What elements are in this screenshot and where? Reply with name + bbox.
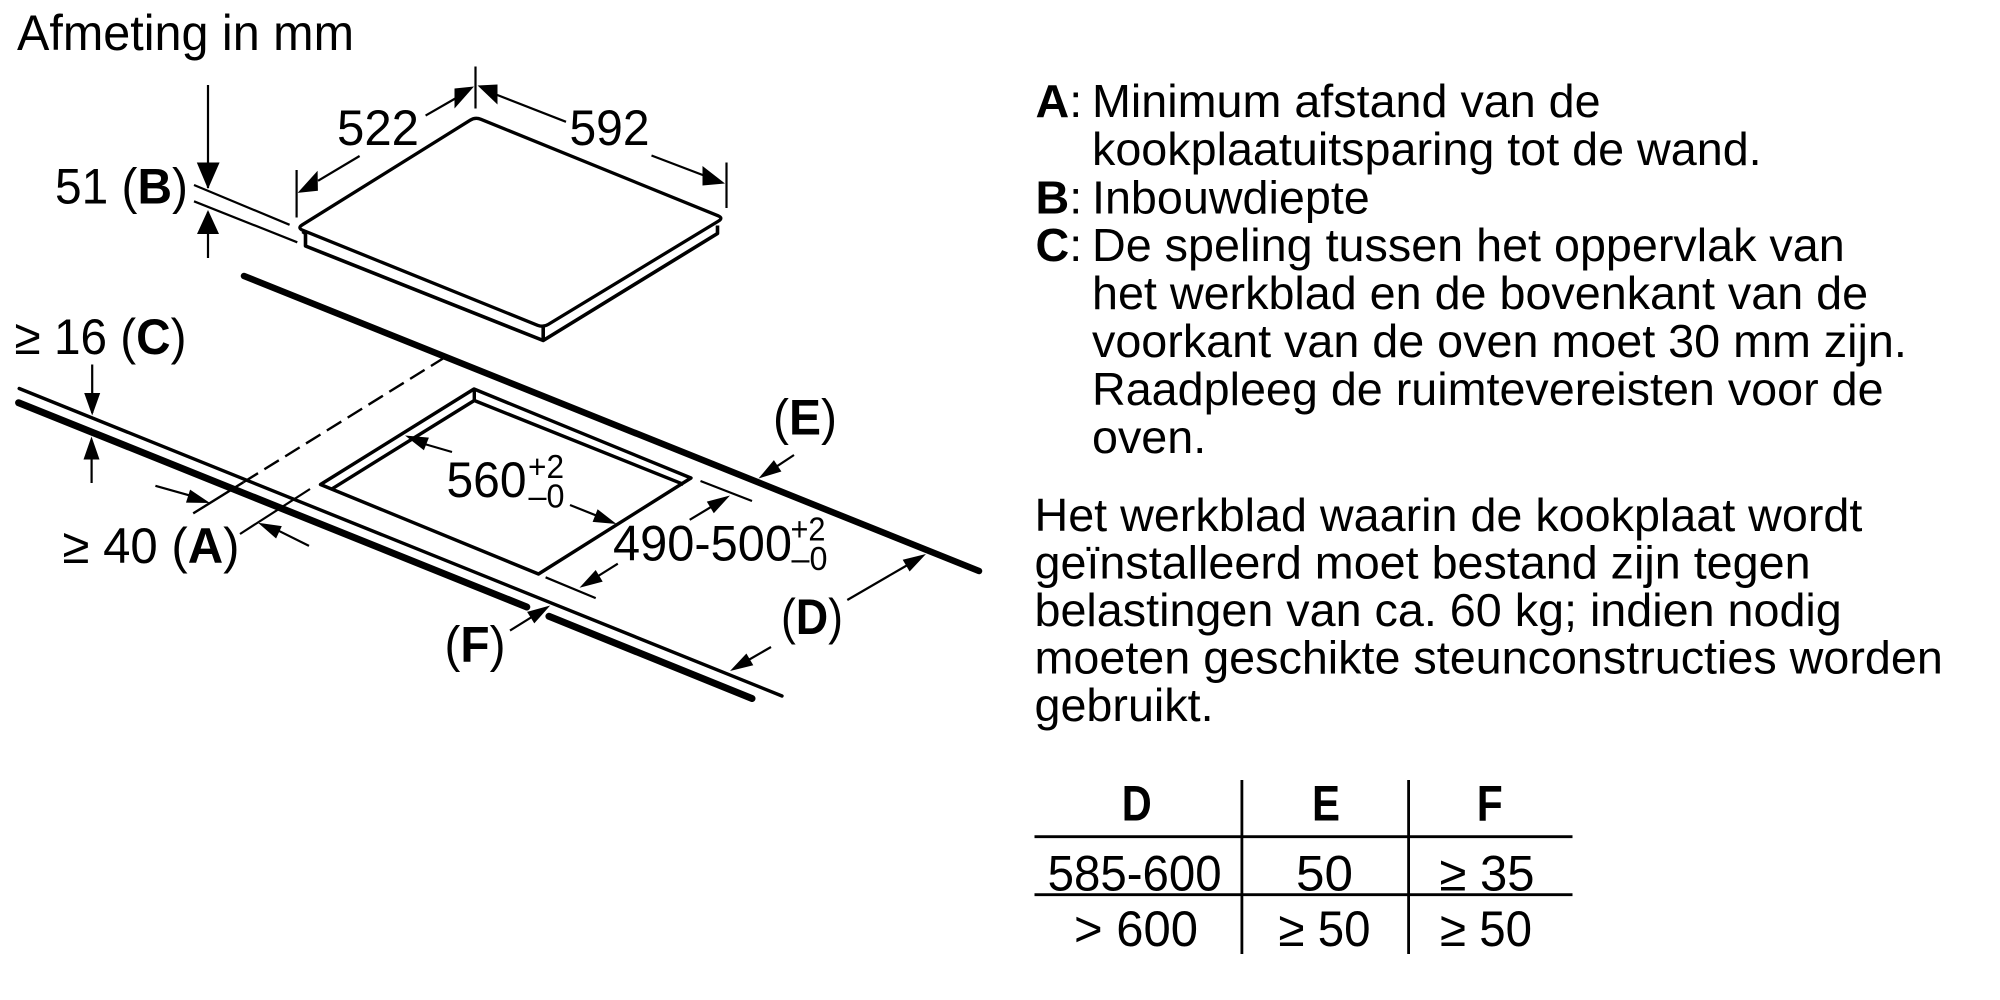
svg-text:(F): (F) (445, 617, 506, 673)
svg-text:≥ 50: ≥ 50 (1440, 901, 1532, 957)
svg-text:(E): (E) (773, 390, 837, 446)
svg-text:560: 560 (447, 452, 527, 508)
svg-text:E: E (1312, 776, 1340, 832)
svg-text:belastingen van ca. 60 kg; ind: belastingen van ca. 60 kg; indien nodig (1035, 584, 1842, 636)
svg-text:≥ 16 (C): ≥ 16 (C) (15, 309, 187, 365)
svg-text:het werkblad en de bovenkant v: het werkblad en de bovenkant van de (1092, 267, 1868, 319)
svg-text:B:: B: (1036, 172, 1083, 224)
svg-text:(D): (D) (781, 589, 843, 645)
svg-text:592: 592 (570, 100, 650, 156)
svg-text:A:: A: (1036, 75, 1083, 127)
svg-text:geïnstalleerd moet bestand zij: geïnstalleerd moet bestand zijn tegen (1035, 537, 1811, 589)
svg-text:50: 50 (1296, 846, 1353, 902)
svg-text:490-500: 490-500 (613, 516, 792, 572)
svg-text:kookplaatuitsparing tot de wan: kookplaatuitsparing tot de wand. (1092, 123, 1762, 175)
svg-text:≥ 40 (A): ≥ 40 (A) (63, 518, 240, 574)
svg-text:oven.: oven. (1092, 411, 1206, 463)
svg-text:moeten geschikte steunconstruc: moeten geschikte steunconstructies worde… (1035, 632, 1943, 684)
svg-text:Minimum afstand van de: Minimum afstand van de (1092, 75, 1601, 127)
svg-text:≥ 50: ≥ 50 (1279, 901, 1371, 957)
svg-text:585-600: 585-600 (1048, 846, 1222, 902)
svg-text:51 (B): 51 (B) (55, 159, 188, 215)
svg-text:Afmeting in mm: Afmeting in mm (17, 5, 354, 61)
svg-text:> 600: > 600 (1074, 901, 1198, 957)
svg-text:Raadpleeg de ruimtevereisten v: Raadpleeg de ruimtevereisten voor de (1092, 363, 1884, 415)
svg-text:F: F (1477, 776, 1503, 832)
svg-text:Inbouwdiepte: Inbouwdiepte (1092, 172, 1370, 224)
svg-text:De speling tussen het oppervla: De speling tussen het oppervlak van (1092, 219, 1845, 271)
svg-text:≥ 35: ≥ 35 (1440, 846, 1535, 902)
svg-text:D: D (1122, 776, 1152, 832)
svg-text:gebruikt.: gebruikt. (1035, 679, 1214, 731)
svg-text:–0: –0 (529, 478, 565, 515)
svg-text:522: 522 (337, 100, 419, 156)
svg-text:voorkant van de oven moet 30 m: voorkant van de oven moet 30 mm zijn. (1092, 315, 1907, 367)
svg-text:–0: –0 (792, 540, 828, 577)
svg-text:C:: C: (1036, 219, 1083, 271)
svg-text:Het werkblad waarin de kookpla: Het werkblad waarin de kookplaat wordt (1035, 489, 1863, 541)
